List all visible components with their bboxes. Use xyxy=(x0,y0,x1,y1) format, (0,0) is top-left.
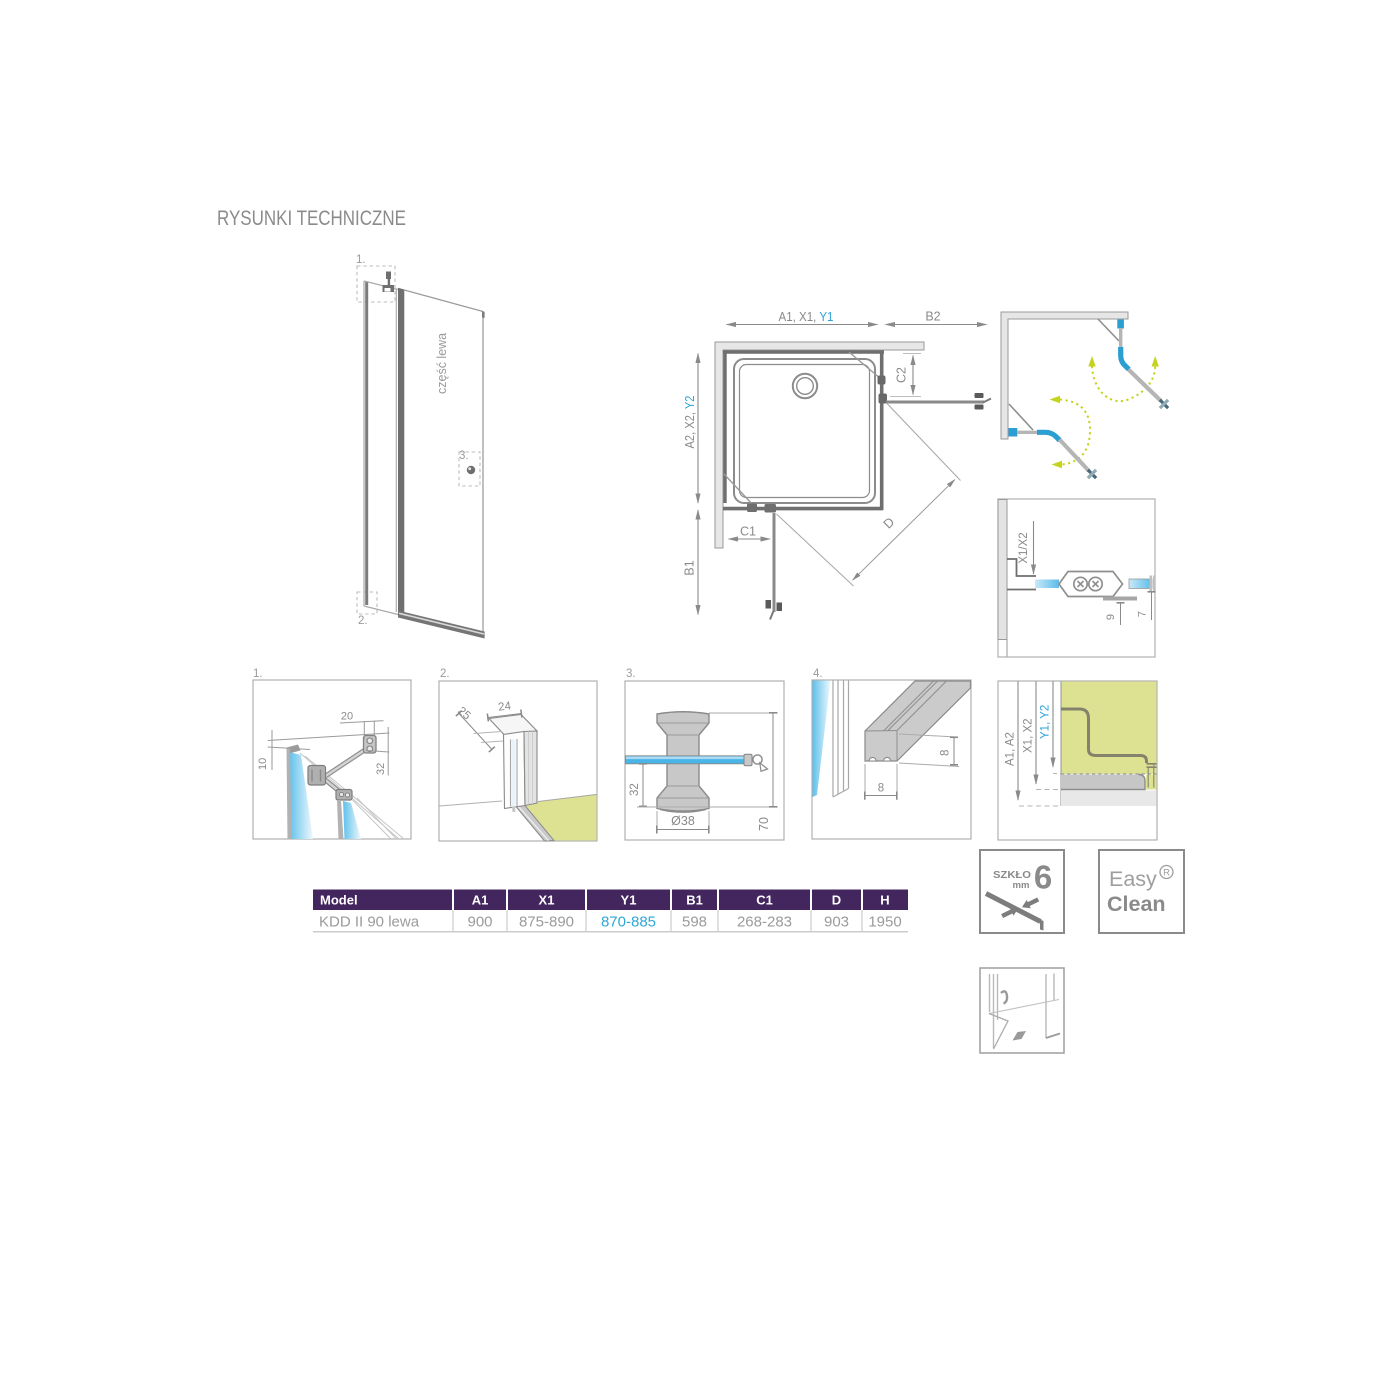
svg-text:7: 7 xyxy=(1137,611,1149,617)
svg-text:2.: 2. xyxy=(440,668,450,680)
svg-text:H: H xyxy=(880,893,889,908)
svg-text:9: 9 xyxy=(1105,614,1117,620)
svg-text:A1, X1, Y1: A1, X1, Y1 xyxy=(779,310,834,324)
svg-text:24: 24 xyxy=(498,700,513,714)
svg-text:10: 10 xyxy=(257,758,269,770)
svg-text:1.: 1. xyxy=(356,254,366,266)
svg-text:4.: 4. xyxy=(813,668,823,680)
svg-text:C1: C1 xyxy=(756,893,773,908)
svg-text:C1: C1 xyxy=(740,525,756,539)
svg-text:903: 903 xyxy=(824,914,849,931)
svg-text:A1: A1 xyxy=(472,893,489,908)
svg-text:8: 8 xyxy=(878,783,884,795)
svg-text:Y1: Y1 xyxy=(621,893,637,908)
svg-text:część lewa: część lewa xyxy=(435,333,449,394)
svg-text:70: 70 xyxy=(757,817,771,831)
svg-text:A1, A2: A1, A2 xyxy=(1005,732,1017,766)
svg-text:D: D xyxy=(832,893,841,908)
svg-text:A2, X2, Y2: A2, X2, Y2 xyxy=(683,395,697,448)
svg-text:32: 32 xyxy=(629,783,641,796)
svg-text:598: 598 xyxy=(682,914,707,931)
svg-text:8: 8 xyxy=(940,750,952,756)
svg-text:1950: 1950 xyxy=(868,914,901,931)
svg-text:20: 20 xyxy=(341,711,353,723)
svg-text:RYSUNKI TECHNICZNE: RYSUNKI TECHNICZNE xyxy=(217,207,406,230)
svg-text:875-890: 875-890 xyxy=(519,914,574,931)
svg-text:R: R xyxy=(1163,868,1170,879)
svg-text:X1/X2: X1/X2 xyxy=(1018,532,1030,563)
svg-text:1.: 1. xyxy=(253,668,263,680)
svg-text:B2: B2 xyxy=(925,310,940,324)
svg-text:32: 32 xyxy=(375,763,387,775)
svg-text:B1: B1 xyxy=(683,560,697,575)
svg-text:870-885: 870-885 xyxy=(601,914,656,931)
svg-text:2.: 2. xyxy=(358,615,368,627)
svg-text:3.: 3. xyxy=(626,668,636,680)
svg-text:B1: B1 xyxy=(686,893,703,908)
svg-text:Clean: Clean xyxy=(1107,892,1166,916)
svg-text:C2: C2 xyxy=(895,367,909,383)
svg-text:KDD II 90 lewa: KDD II 90 lewa xyxy=(319,914,420,931)
svg-text:900: 900 xyxy=(467,914,492,931)
svg-text:mm: mm xyxy=(1013,880,1030,891)
svg-text:Ø38: Ø38 xyxy=(671,814,695,828)
svg-text:Model: Model xyxy=(320,893,358,908)
svg-text:X1: X1 xyxy=(539,893,555,908)
svg-text:268-283: 268-283 xyxy=(737,914,792,931)
svg-text:Easy: Easy xyxy=(1109,867,1157,891)
svg-text:Y1, Y2: Y1, Y2 xyxy=(1040,705,1052,739)
svg-text:6: 6 xyxy=(1034,859,1052,896)
svg-text:X1, X2: X1, X2 xyxy=(1023,718,1035,753)
